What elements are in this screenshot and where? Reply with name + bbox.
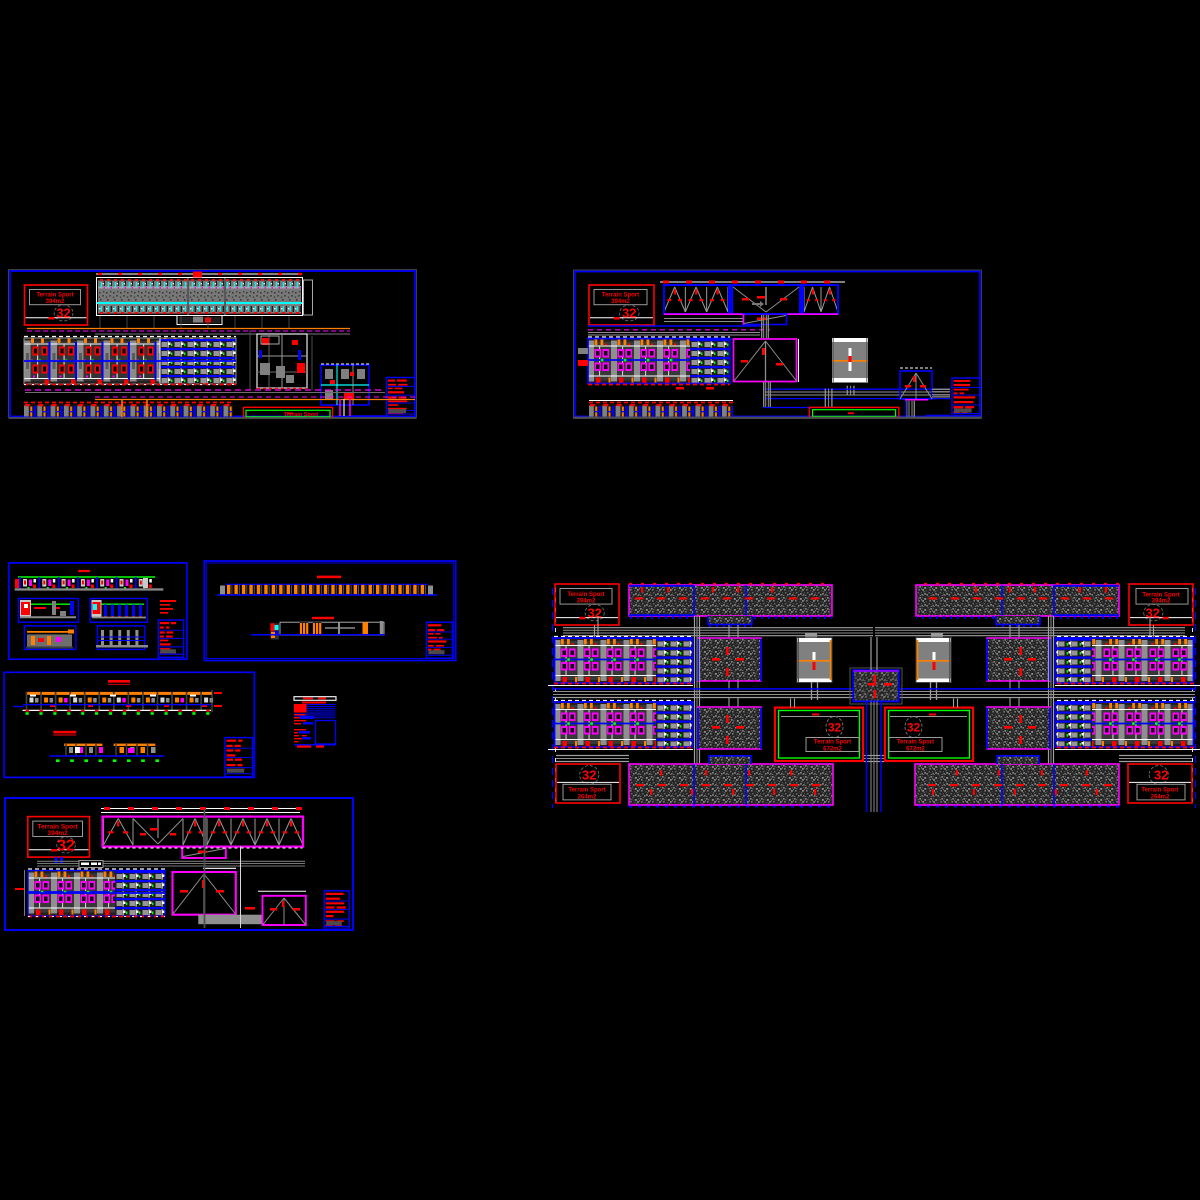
svg-text:Terrain Sport: Terrain Sport (1141, 788, 1178, 794)
svg-text:672m2: 672m2 (823, 747, 842, 753)
svg-text:394m2: 394m2 (46, 299, 65, 305)
svg-text:32: 32 (1154, 768, 1168, 783)
svg-text:Terrain Sport: Terrain Sport (602, 293, 639, 299)
svg-text:Terrain Sport: Terrain Sport (897, 740, 934, 746)
svg-text:394m2: 394m2 (611, 299, 630, 305)
svg-text:394m2: 394m2 (1152, 599, 1171, 605)
svg-text:264m2: 264m2 (578, 794, 597, 800)
svg-text:Terrain Sport: Terrain Sport (36, 293, 73, 299)
svg-text:32: 32 (1145, 605, 1159, 620)
svg-text:672m2: 672m2 (906, 747, 925, 753)
svg-text:Terrain Sport: Terrain Sport (814, 740, 851, 746)
svg-text:394m2: 394m2 (48, 830, 69, 837)
svg-text:Terrain Sport: Terrain Sport (1142, 592, 1179, 598)
svg-text:Terrain Sport: Terrain Sport (568, 788, 605, 794)
svg-text:264m2: 264m2 (1151, 794, 1170, 800)
svg-text:394m2: 394m2 (577, 599, 596, 605)
svg-text:Terrain Sport: Terrain Sport (284, 412, 318, 418)
svg-text:32: 32 (582, 768, 596, 783)
svg-text:Terrain Sport: Terrain Sport (567, 592, 604, 598)
svg-text:32: 32 (907, 721, 921, 735)
svg-text:32: 32 (622, 306, 636, 321)
svg-text:32: 32 (57, 838, 75, 855)
svg-text:32: 32 (828, 721, 842, 735)
svg-text:32: 32 (587, 605, 601, 620)
svg-text:32: 32 (56, 306, 70, 321)
